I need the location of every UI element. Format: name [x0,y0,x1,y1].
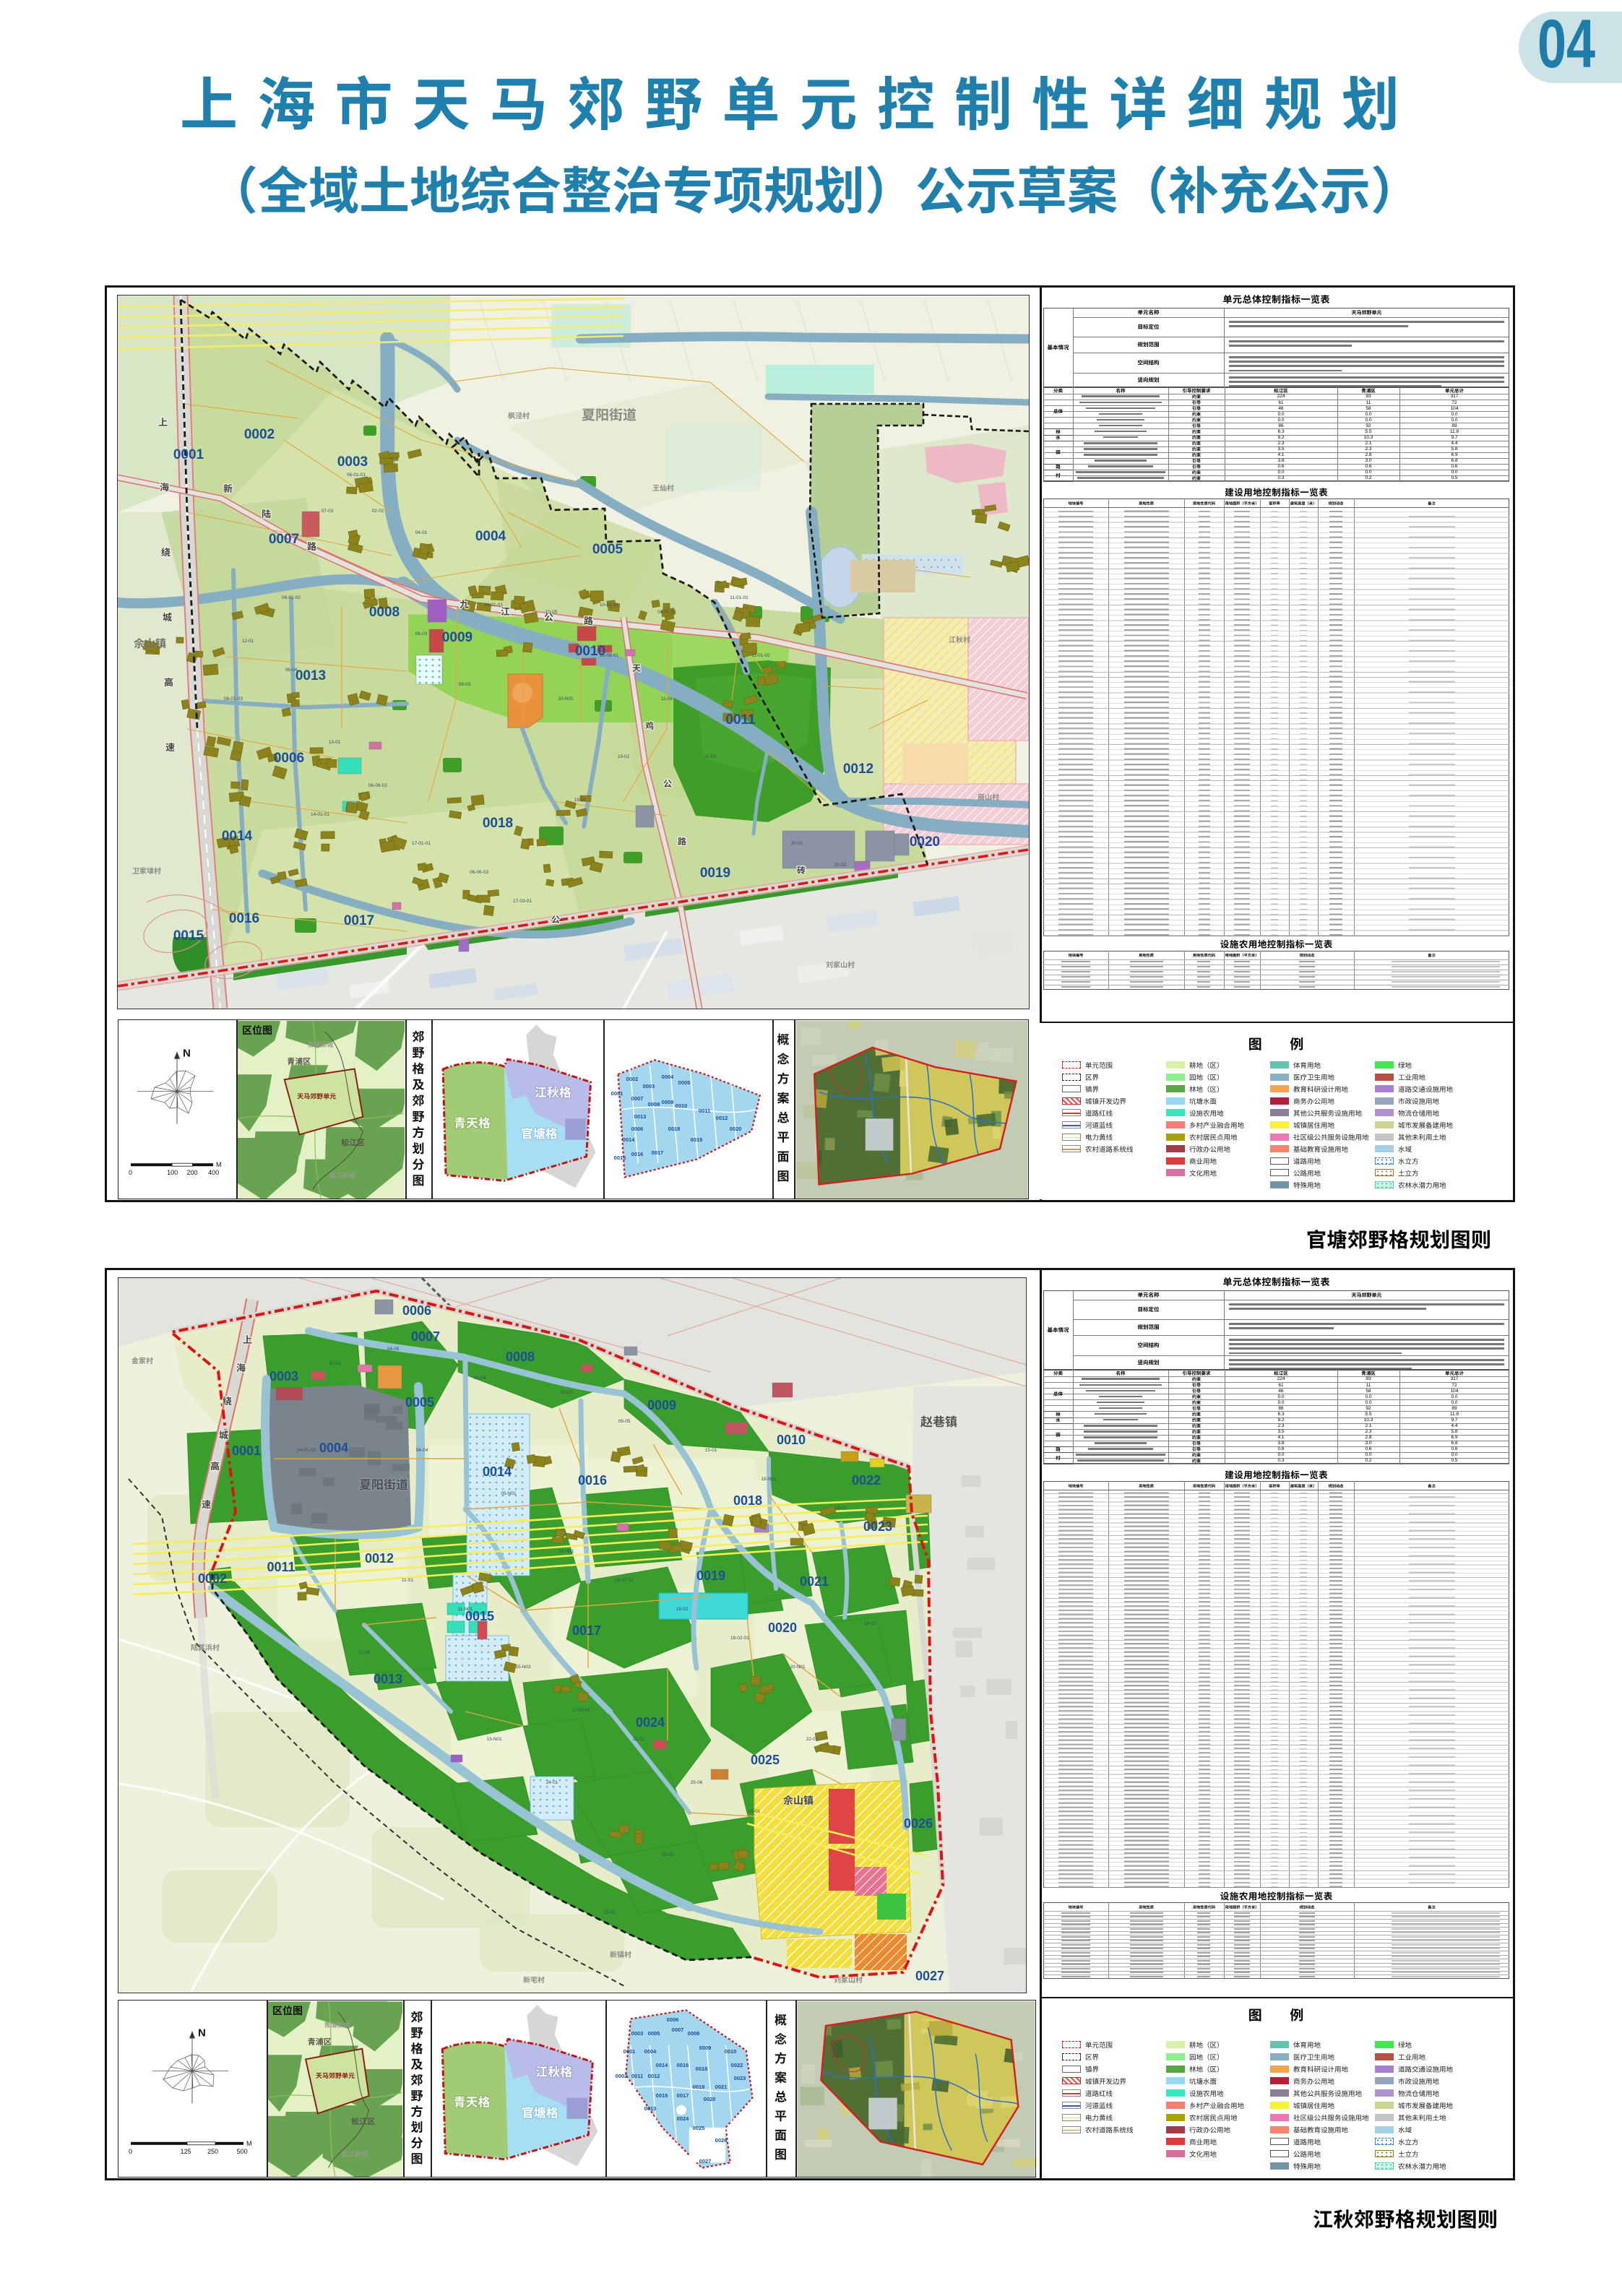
svg-text:0: 0 [129,1169,132,1176]
svg-text:100: 100 [167,1169,178,1176]
svg-text:400: 400 [208,1169,219,1176]
svg-text:500: 500 [237,2148,248,2155]
svg-text:M: M [216,1161,222,1168]
svg-text:125: 125 [181,2148,191,2155]
svg-text:N: N [198,2027,206,2039]
svg-text:M: M [246,2140,252,2147]
svg-text:200: 200 [187,1169,198,1176]
svg-text:0: 0 [129,2148,132,2155]
svg-text:N: N [183,1048,191,1060]
svg-text:250: 250 [207,2148,218,2155]
